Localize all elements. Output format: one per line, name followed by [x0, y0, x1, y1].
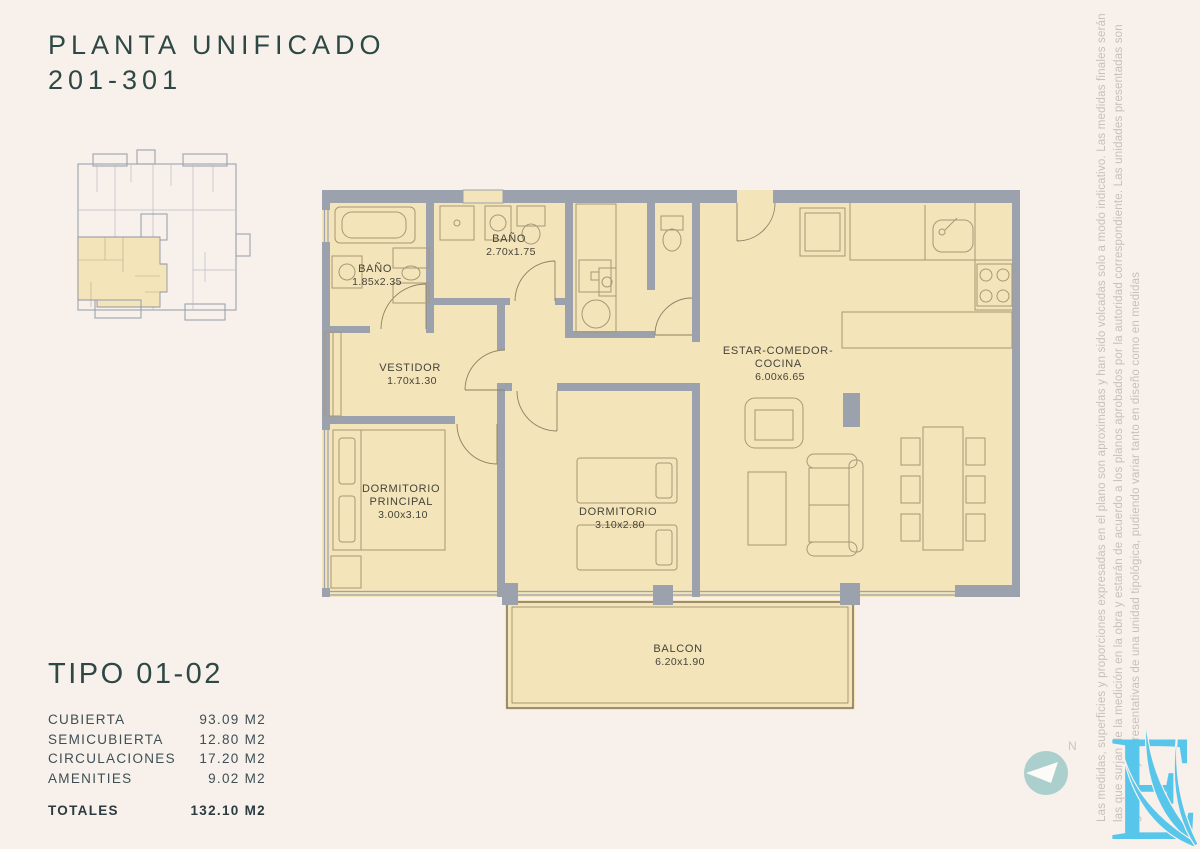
- area-label: CUBIERTA: [48, 712, 125, 727]
- page-title: PLANTA UNIFICADO 201-301: [48, 28, 386, 98]
- area-row-totales: TOTALES 132.10 M2: [48, 803, 266, 818]
- floor-plan-drawing: BAÑO 1.85x2.35 BAÑO 2.70x1.75 VESTIDOR 1…: [315, 180, 1035, 715]
- area-row-semicubierta: SEMICUBIERTA 12.80 M2: [48, 732, 266, 747]
- floor-plan-sheet: { "title": { "line1": "PLANTA UNIFICADO"…: [0, 0, 1200, 849]
- entry-niche: [463, 190, 503, 203]
- area-row-circulaciones: CIRCULACIONES 17.20 M2: [48, 751, 266, 766]
- key-plan: [45, 142, 260, 332]
- area-row-cubierta: CUBIERTA 93.09 M2: [48, 712, 266, 727]
- key-plan-highlighted-unit: [78, 237, 167, 318]
- compass-icon: N: [1014, 734, 1094, 798]
- area-value: 17.20 M2: [199, 751, 266, 766]
- balcony-area: [505, 600, 855, 710]
- unit-type-heading: TIPO 01-02: [48, 658, 266, 691]
- area-value: 93.09 M2: [199, 712, 266, 727]
- area-value: 9.02 M2: [208, 771, 266, 786]
- total-value: 132.10 M2: [191, 803, 267, 818]
- area-value: 12.80 M2: [199, 732, 266, 747]
- area-label: CIRCULACIONES: [48, 751, 176, 766]
- page-title-line2: 201-301: [48, 63, 386, 98]
- total-label: TOTALES: [48, 803, 119, 818]
- compass-north-label: N: [1068, 739, 1078, 753]
- page-title-line1: PLANTA UNIFICADO: [48, 28, 386, 63]
- brand-logo-e-icon: E: [1102, 692, 1200, 849]
- room-label-balcon: BALCON 6.20x1.90: [653, 643, 706, 668]
- area-label: AMENITIES: [48, 771, 132, 786]
- area-row-amenities: AMENITIES 9.02 M2: [48, 771, 266, 786]
- area-label: SEMICUBIERTA: [48, 732, 164, 747]
- area-summary: TIPO 01-02 CUBIERTA 93.09 M2 SEMICUBIERT…: [48, 658, 266, 822]
- room-label-vestidor: VESTIDOR 1.70x1.30: [379, 362, 445, 387]
